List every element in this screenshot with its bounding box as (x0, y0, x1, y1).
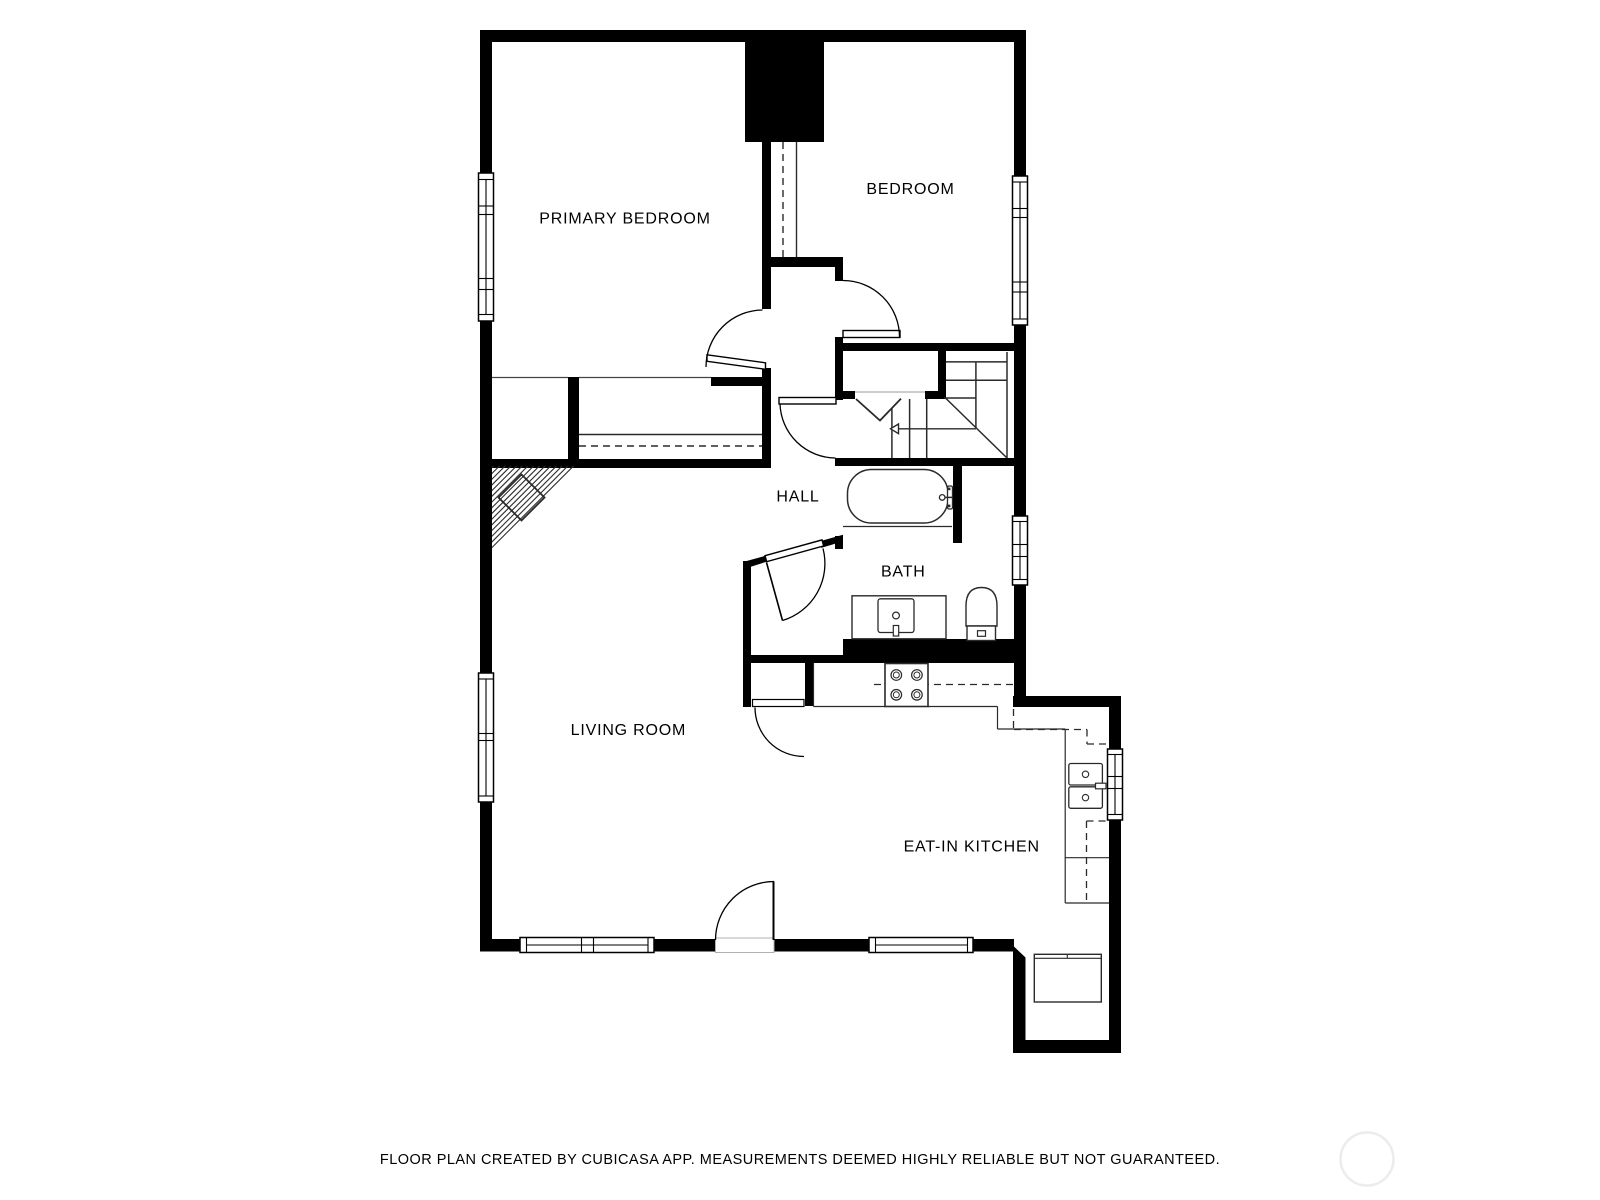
svg-text:BATH: BATH (881, 563, 926, 580)
svg-text:BEDROOM: BEDROOM (866, 181, 954, 198)
svg-text:PRIMARY BEDROOM: PRIMARY BEDROOM (539, 211, 710, 228)
svg-text:FLOOR PLAN CREATED BY CUBICASA: FLOOR PLAN CREATED BY CUBICASA APP. MEAS… (380, 1152, 1220, 1168)
svg-text:EAT-IN KITCHEN: EAT-IN KITCHEN (904, 838, 1040, 855)
svg-text:HALL: HALL (776, 489, 819, 506)
svg-text:LIVING ROOM: LIVING ROOM (571, 722, 686, 739)
